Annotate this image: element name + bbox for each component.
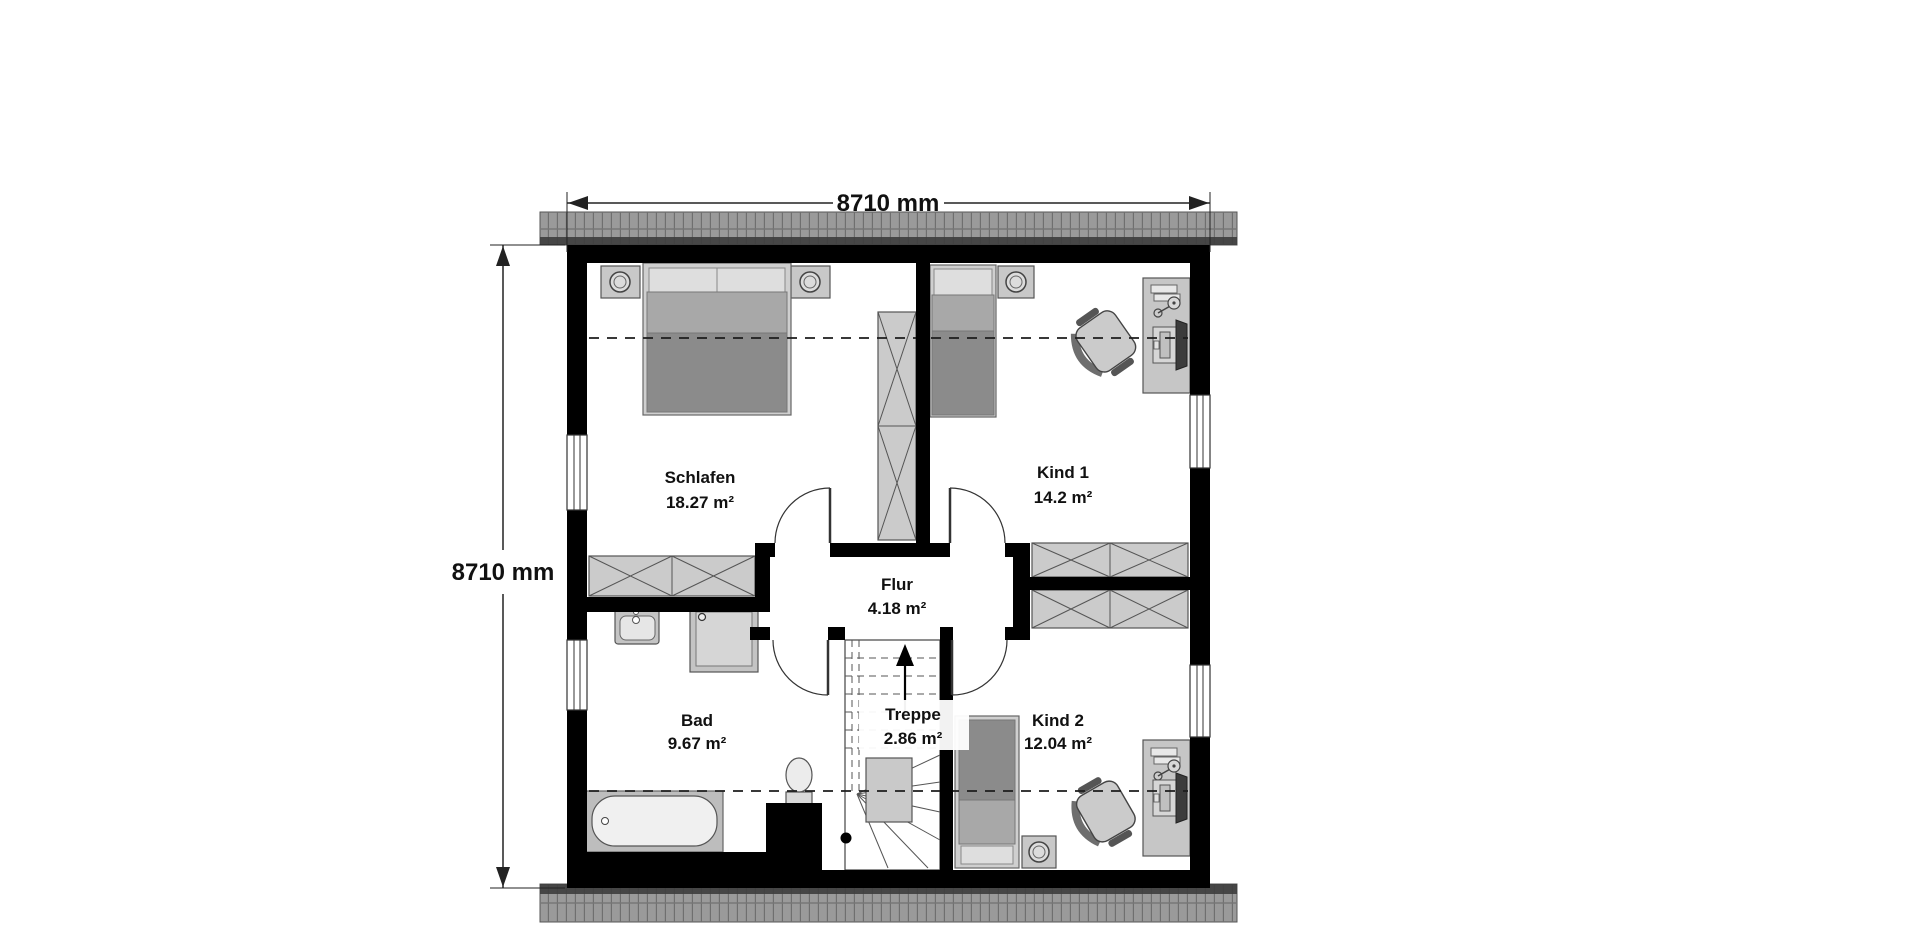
- dimension-left-label: 8710 mm: [452, 559, 555, 586]
- nightstand-icon: [1022, 836, 1056, 868]
- window-icon: [563, 640, 589, 710]
- stairs-icon: [841, 640, 941, 870]
- office-chair-icon: [1063, 771, 1142, 856]
- nightstand-icon: [998, 266, 1034, 298]
- monitor-icon: [1153, 320, 1187, 370]
- chimney-shaft-icon: [878, 312, 916, 540]
- room-area-kind2: 12.04 m²: [1024, 734, 1092, 753]
- dimension-arrow-icon: [496, 867, 510, 887]
- room-name-schlafen: Schlafen: [665, 468, 736, 487]
- office-chair-icon: [1062, 300, 1144, 386]
- bathtub-icon: [586, 791, 723, 852]
- dimension-left: 8710 mm: [452, 245, 565, 888]
- floor-plan-canvas: 8710 mm 8710 mm Schlafen 18.27 m² Kind 1…: [0, 0, 1920, 945]
- washbasin-icon: [615, 608, 659, 644]
- room-name-kind1: Kind 1: [1037, 463, 1089, 482]
- nightstand-icon: [791, 266, 830, 298]
- room-name-treppe: Treppe: [885, 705, 941, 724]
- toilet-icon: [786, 758, 812, 805]
- desk-icon: [1143, 740, 1190, 856]
- room-name-bad: Bad: [681, 711, 713, 730]
- newel-post-icon: [841, 833, 852, 844]
- room-area-kind1: 14.2 m²: [1034, 488, 1093, 507]
- desk-icon: [1143, 278, 1190, 393]
- floor-plan-drawing: 8710 mm 8710 mm Schlafen 18.27 m² Kind 1…: [0, 0, 1920, 945]
- room-name-flur: Flur: [881, 575, 913, 594]
- wardrobe-icon: [589, 556, 755, 596]
- room-area-flur: 4.18 m²: [868, 599, 927, 618]
- chimney-icon: [866, 758, 912, 822]
- dimension-top-label: 8710 mm: [837, 190, 940, 217]
- window-icon: [563, 435, 589, 510]
- dimension-arrow-icon: [568, 196, 588, 210]
- room-area-schlafen: 18.27 m²: [666, 493, 734, 512]
- single-bed-icon: [930, 265, 996, 417]
- room-area-bad: 9.67 m²: [668, 734, 727, 753]
- room-area-treppe: 2.86 m²: [884, 729, 943, 748]
- dimension-arrow-icon: [1189, 196, 1209, 210]
- dimension-arrow-icon: [496, 246, 510, 266]
- room-name-kind2: Kind 2: [1032, 711, 1084, 730]
- nightstand-icon: [601, 266, 640, 298]
- wardrobe-icon: [1032, 543, 1188, 577]
- double-bed-icon: [643, 263, 791, 415]
- shower-icon: [690, 606, 758, 672]
- window-icon: [1190, 665, 1217, 737]
- wardrobe-icon: [1032, 590, 1188, 628]
- window-icon: [1190, 395, 1217, 468]
- monitor-icon: [1153, 773, 1187, 823]
